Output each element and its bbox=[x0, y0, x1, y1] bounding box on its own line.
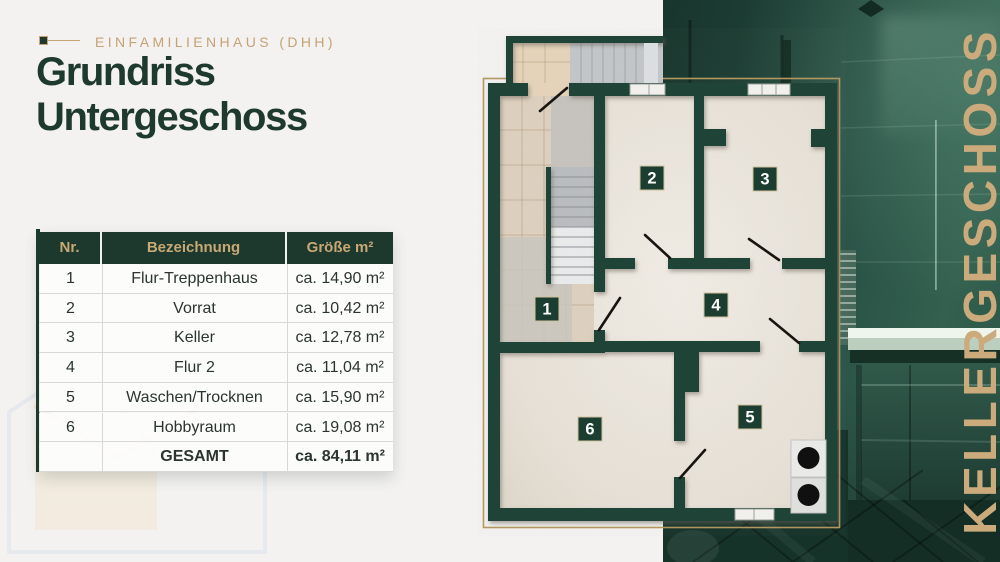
svg-text:4: 4 bbox=[711, 297, 721, 315]
svg-text:1: 1 bbox=[542, 301, 551, 319]
svg-text:3: 3 bbox=[760, 171, 769, 189]
svg-text:6: 6 bbox=[585, 421, 594, 439]
svg-text:5: 5 bbox=[745, 409, 754, 427]
svg-text:2: 2 bbox=[647, 170, 656, 188]
